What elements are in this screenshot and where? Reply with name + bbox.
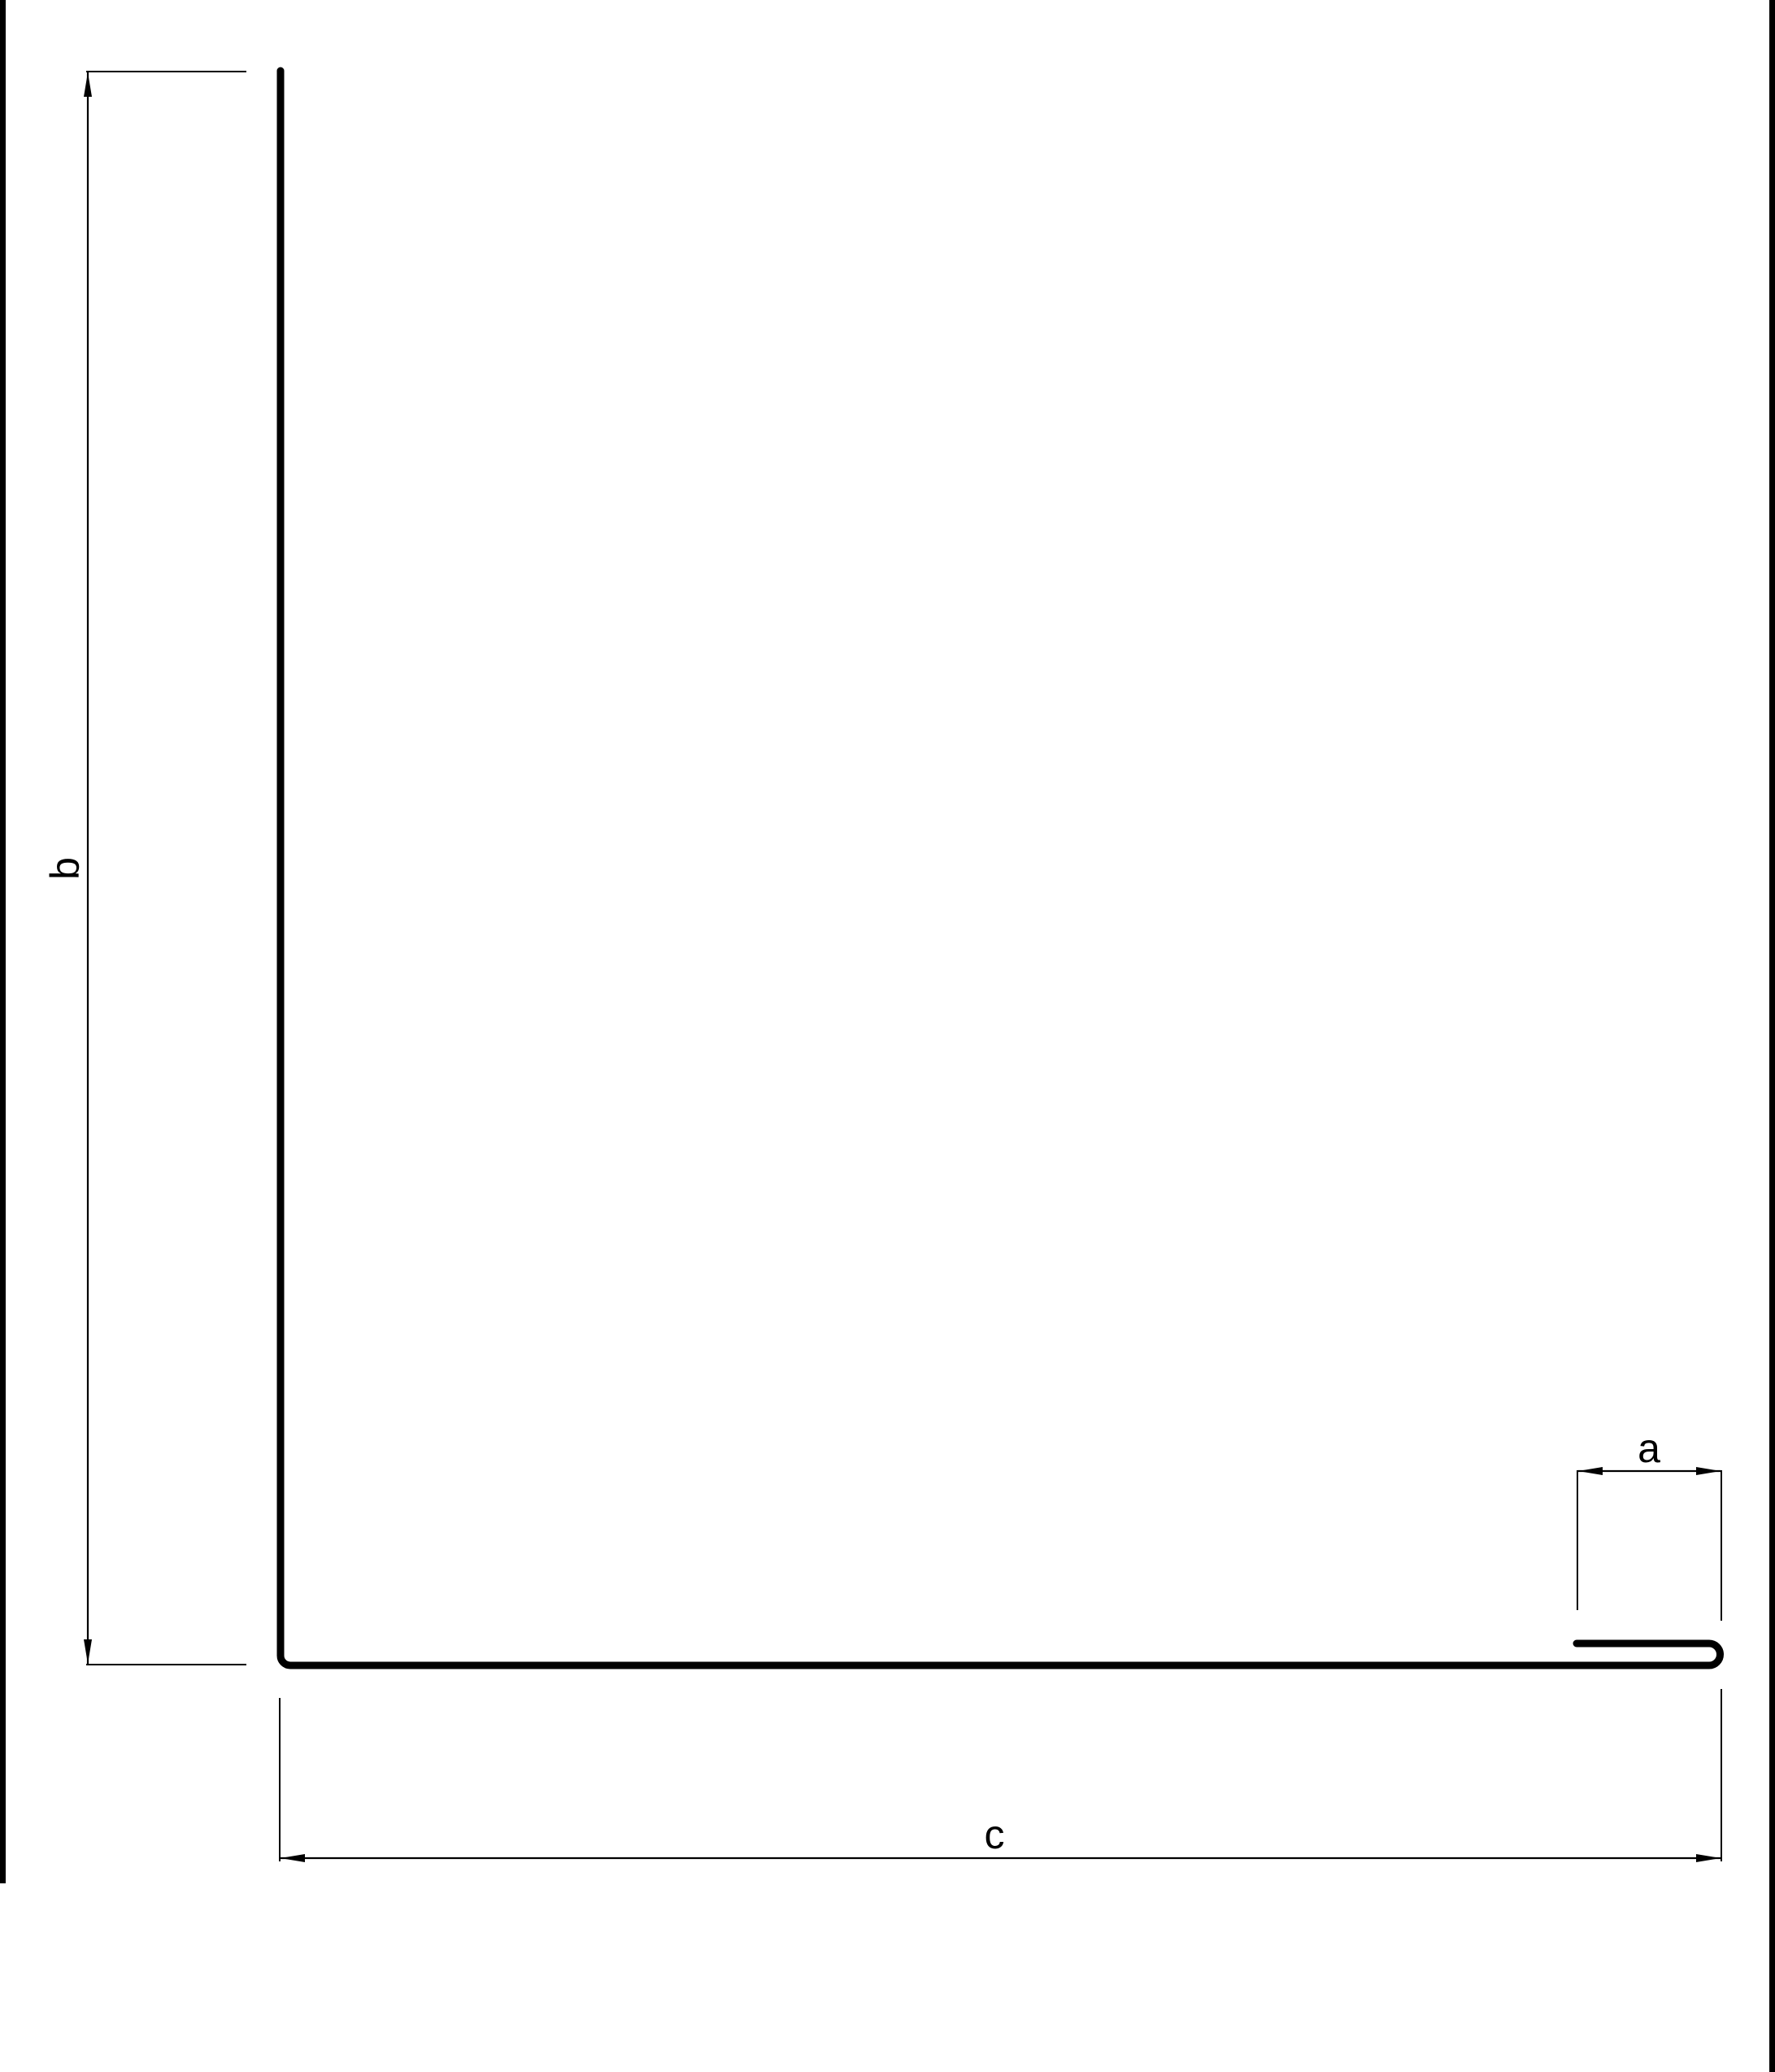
- right-edge-bar: [1769, 0, 1775, 2072]
- dimension-c-label: c: [985, 1812, 1005, 1857]
- canvas-background: [0, 0, 1775, 2072]
- left-edge-bar: [0, 0, 6, 1883]
- dimension-a-label: a: [1638, 1426, 1660, 1471]
- flashing-profile-diagram: b a c: [0, 0, 1775, 2072]
- dimension-b-label: b: [42, 857, 88, 880]
- technical-drawing-page: b a c: [0, 0, 1775, 2072]
